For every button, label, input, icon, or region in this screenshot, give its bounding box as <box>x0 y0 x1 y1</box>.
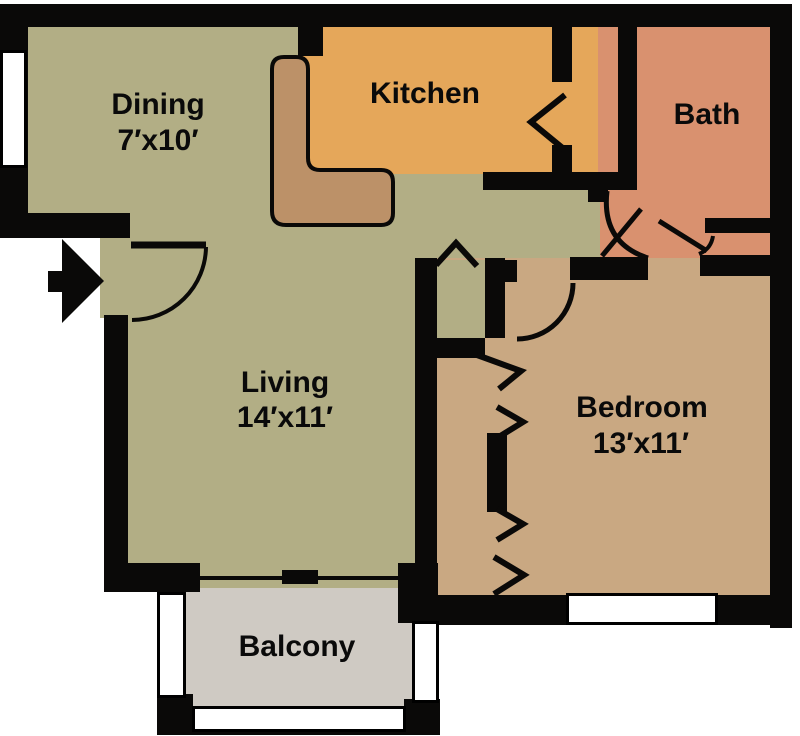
balcony-label: Balcony <box>177 630 417 664</box>
dining-label: Dining <box>38 88 278 122</box>
dining-dimensions: 7′x10′ <box>38 124 278 158</box>
bedroom-closet-bifold-1-icon <box>477 355 521 389</box>
balcony-slider-panel <box>282 570 318 584</box>
bedroom-dimensions: 13′x11′ <box>521 427 761 461</box>
entry-door-arc <box>132 247 206 320</box>
hall-closet-bifold-icon <box>436 243 477 266</box>
bedroom-closet-bifold-2-icon <box>497 407 523 438</box>
bedroom-label: Bedroom <box>522 391 762 425</box>
floor-plan: Dining 7′x10′ Kitchen Bath Living 14′x11… <box>0 0 800 736</box>
living-dimensions: 14′x11′ <box>165 401 405 435</box>
bedroom-closet-bifold-3-icon <box>497 509 523 540</box>
bedroom-closet-bifold-4-icon <box>494 557 524 594</box>
linen-door-leaf <box>659 221 707 251</box>
entry-arrow-icon <box>48 239 104 323</box>
living-label: Living <box>165 366 405 400</box>
bath-label: Bath <box>587 98 800 132</box>
bedroom-door-arc <box>517 283 573 339</box>
kitchen-label: Kitchen <box>305 77 545 111</box>
